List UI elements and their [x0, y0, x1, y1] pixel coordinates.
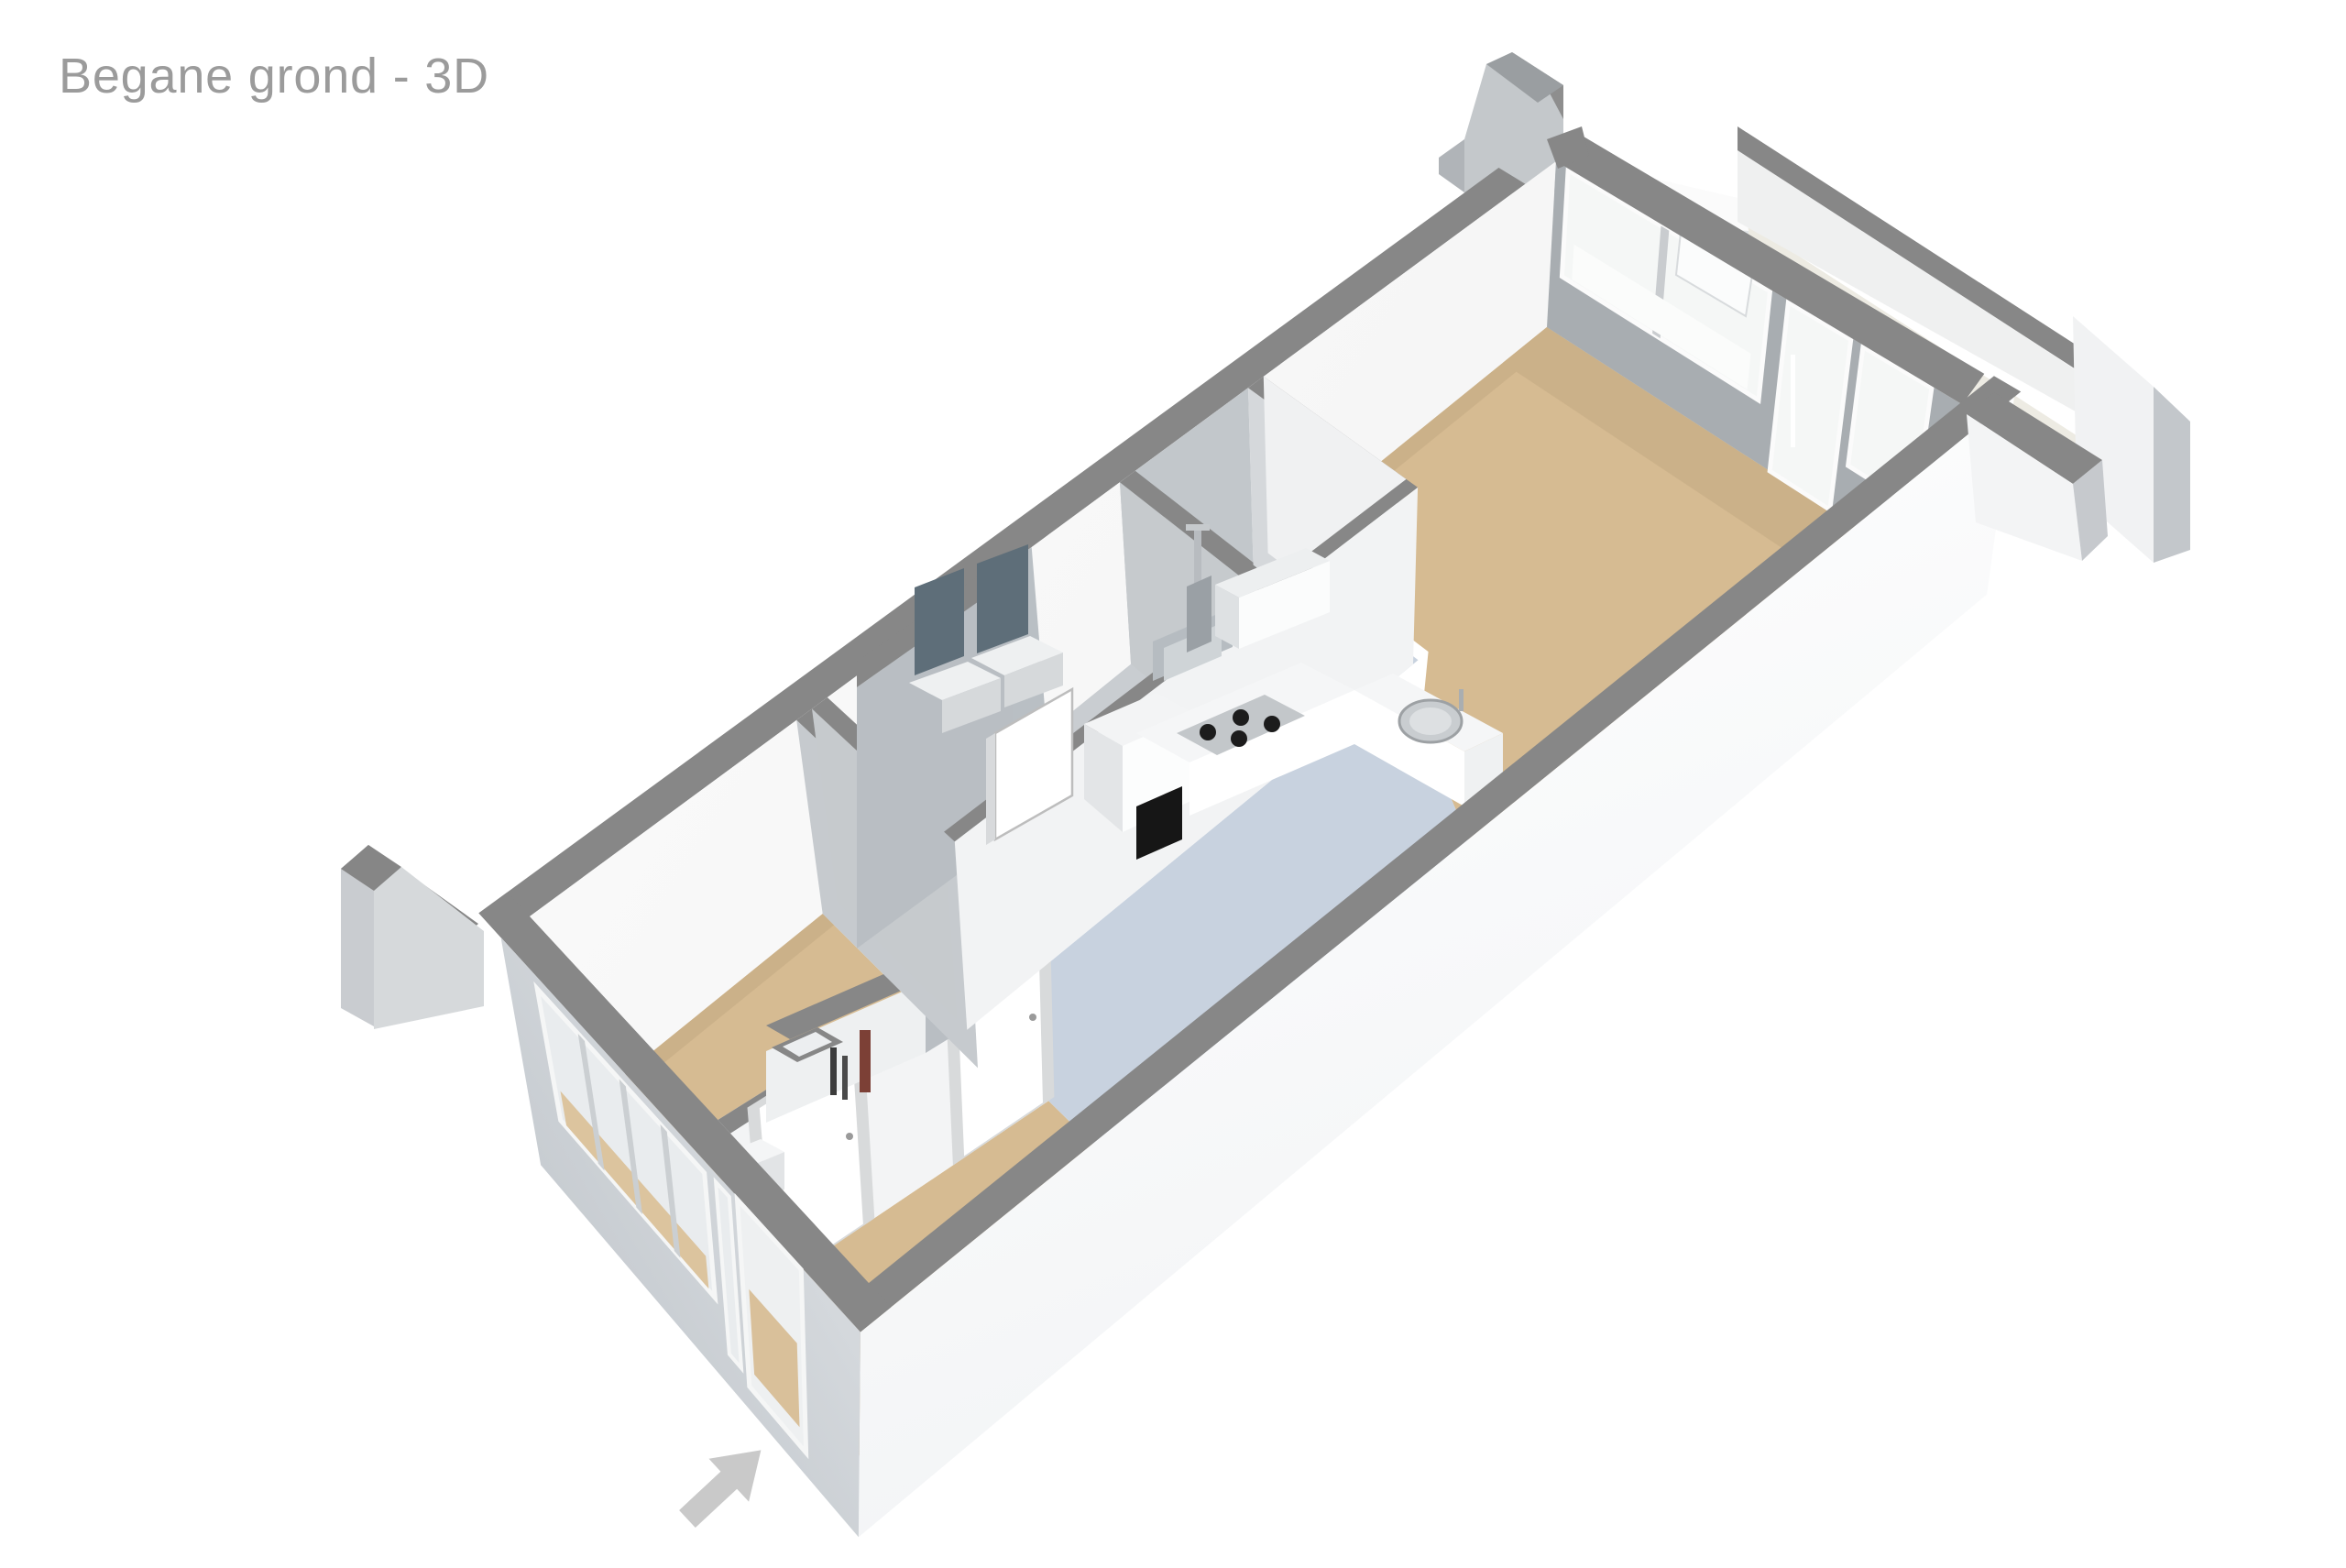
- svg-text:Begane grond - 3D: Begane grond - 3D: [59, 49, 489, 104]
